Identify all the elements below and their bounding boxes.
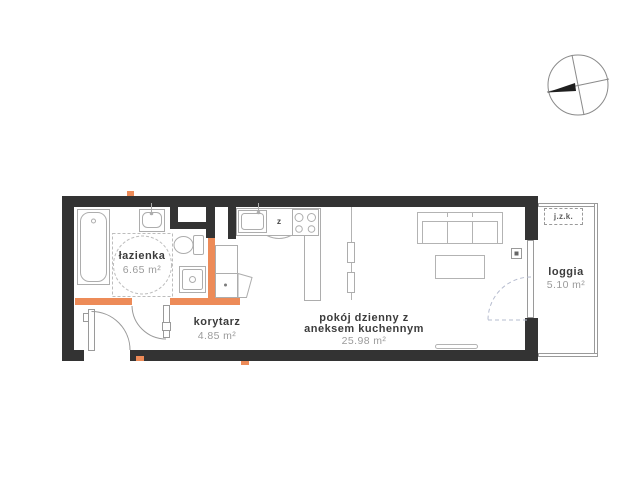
corridor-wardrobe: [216, 246, 253, 298]
wall-left: [62, 196, 74, 361]
entry-door: [84, 310, 131, 351]
bathroom-sink-icon: [140, 203, 165, 232]
balcony-door-glazing: [528, 241, 534, 318]
entry-door-hinge-mark: [84, 314, 89, 322]
balustrade-bottom: [539, 354, 598, 357]
accent-tick-bottom-1: [136, 356, 144, 361]
dishwasher-label: z: [277, 216, 281, 226]
wall-bottom-stub: [62, 350, 84, 361]
balcony-door-swing: [488, 277, 531, 320]
shaft-wall-mid: [206, 196, 215, 238]
balustrade-top: [539, 204, 598, 207]
ac-unit-marker: [512, 249, 522, 259]
floor-plan-drawing: [0, 0, 640, 480]
room-label-living-line2: aneksem kuchennym: [304, 323, 424, 335]
wall-top: [62, 196, 538, 207]
room-label-corridor: korytarz: [194, 316, 241, 328]
coffee-table-icon: [436, 256, 485, 279]
north-arrow: [547, 83, 576, 93]
living-room-furniture: [418, 213, 522, 349]
bathroom-door-leaf: [164, 306, 170, 338]
kitchen-sink-icon: [239, 203, 267, 233]
room-label-loggia: loggia: [548, 266, 583, 278]
room-label-bathroom: łazienka: [119, 250, 166, 262]
room-area-living: 25.98 m²: [342, 335, 387, 347]
washing-machine-icon: [180, 267, 206, 293]
wall-bottom: [130, 350, 538, 361]
wardrobe-rod-dot: [224, 284, 227, 287]
entry-door-arc: [92, 312, 131, 351]
stove-icon: [293, 210, 319, 236]
sliding-partition: [348, 207, 355, 300]
balustrade-right: [595, 204, 598, 357]
ac-outdoor-unit-label: j.z.k.: [554, 212, 573, 221]
accent-wall-vertical: [208, 238, 215, 298]
room-area-loggia: 5.10 m²: [547, 279, 585, 291]
kitchen-annex: [237, 203, 355, 301]
ac-outdoor-unit-box: j.z.k.: [544, 208, 583, 225]
accent-tick-bottom-2: [241, 361, 249, 365]
shaft1-wall-bottom: [170, 222, 206, 229]
floor-plan-page: łazienka 6.65 m² korytarz 4.85 m² pokój …: [0, 0, 640, 480]
wardrobe-body: [216, 246, 238, 298]
bathtub-icon: [78, 210, 110, 285]
toilet-icon: [174, 236, 204, 255]
wardrobe-open-door: [238, 274, 252, 298]
bathroom-door-arc: [132, 306, 166, 339]
accent-wall-bath-left: [75, 298, 132, 305]
room-area-corridor: 4.85 m²: [198, 330, 236, 342]
doors: [84, 306, 171, 351]
sofa-icon: [418, 213, 503, 244]
loggia-pillar-top: [525, 196, 538, 240]
bathroom-door-hinge-mark: [163, 323, 171, 331]
north-compass-icon: [547, 55, 609, 115]
radiator-icon: [436, 345, 478, 349]
swing-arc: [488, 277, 531, 320]
bathroom-door: [132, 306, 171, 340]
loggia-pillar-bottom: [525, 318, 538, 361]
room-area-bathroom: 6.65 m²: [123, 264, 161, 276]
entry-door-leaf: [89, 310, 95, 351]
accent-wall-bath-right: [170, 298, 240, 305]
shaft-wall-right: [228, 196, 236, 239]
accent-tick-top: [127, 191, 134, 196]
